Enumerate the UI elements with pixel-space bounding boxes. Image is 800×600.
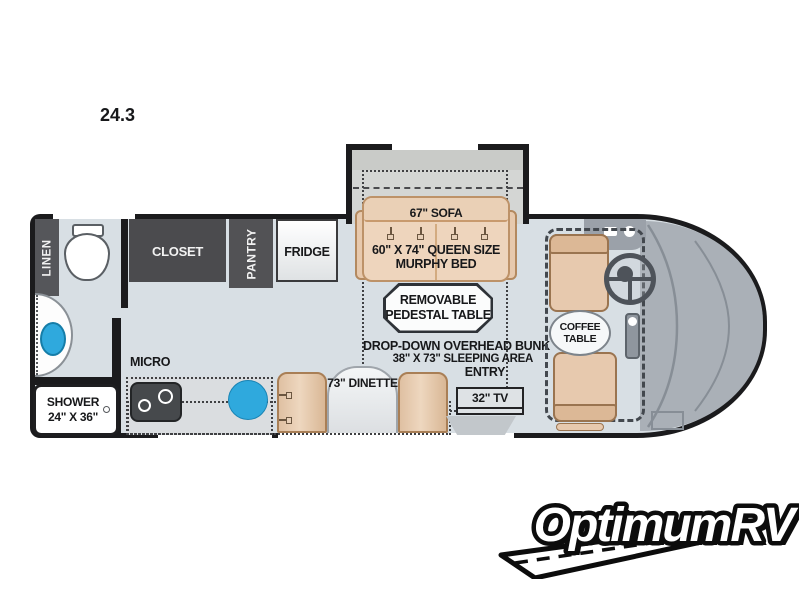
kitchen-sink bbox=[228, 380, 268, 420]
entry-label: ENTRY bbox=[450, 366, 520, 379]
floorplan-canvas: 24.3 LINEN CLOSET PANTRY FRIDGE bbox=[0, 0, 800, 600]
seatbelt-icon bbox=[386, 227, 395, 242]
tv-label: 32" TV bbox=[456, 392, 524, 405]
pantry-label: PANTRY bbox=[244, 228, 258, 279]
stove-burner-right bbox=[158, 389, 173, 404]
linen-cabinet: LINEN bbox=[35, 219, 59, 296]
tv-shelf-line bbox=[458, 407, 522, 409]
seatbelt-icon bbox=[279, 416, 294, 425]
pedestal-table-label: REMOVABLE PEDESTAL TABLE bbox=[383, 293, 493, 323]
murphy-bed-line2: MURPHY BED bbox=[366, 257, 506, 271]
vanity-dotted-edge bbox=[36, 295, 38, 375]
seatbelt-icon bbox=[279, 391, 294, 400]
shower-label: SHOWER 24" X 36" bbox=[36, 395, 110, 425]
stove-burner-left bbox=[138, 399, 151, 412]
steering-wheel-hub bbox=[617, 266, 633, 282]
murphy-bed-label: 60" X 74" QUEEN SIZE MURPHY BED bbox=[366, 243, 506, 272]
coffee-table-line2: TABLE bbox=[549, 333, 611, 345]
shower-head bbox=[103, 406, 110, 413]
slideout-upper-shade bbox=[352, 150, 523, 170]
dealer-logo: OptimumRV OptimumRV bbox=[493, 481, 799, 579]
chair-footrest bbox=[556, 423, 604, 431]
micro-label: MICRO bbox=[130, 356, 180, 369]
fridge-label: FRIDGE bbox=[276, 246, 338, 259]
dinette-label: 73" DINETTE bbox=[317, 377, 408, 390]
pedestal-table-line1: REMOVABLE bbox=[383, 293, 493, 308]
coffee-table-label: COFFEE TABLE bbox=[549, 321, 611, 345]
sofa-label: 67" SOFA bbox=[372, 207, 500, 220]
seatbelt-icon bbox=[450, 227, 459, 242]
seatbelt-icon bbox=[480, 227, 489, 242]
overhead-bunk-label: DROP-DOWN OVERHEAD BUNK 38" X 73" SLEEPI… bbox=[363, 340, 533, 365]
wall-bath-closet bbox=[121, 219, 128, 308]
model-number: 24.3 bbox=[100, 106, 160, 125]
seatbelt-icon bbox=[416, 227, 425, 242]
pantry-cabinet: PANTRY bbox=[229, 219, 273, 288]
pedestal-table-line2: PEDESTAL TABLE bbox=[383, 308, 493, 323]
bath-sink bbox=[40, 322, 66, 356]
shower-label-line1: SHOWER bbox=[36, 395, 110, 410]
console-cupholder bbox=[628, 317, 637, 326]
overhead-bunk-line2: 38" X 73" SLEEPING AREA bbox=[363, 353, 533, 365]
entry-step bbox=[446, 416, 516, 435]
captain-chair-rear-back bbox=[553, 404, 617, 422]
coffee-table-line1: COFFEE bbox=[549, 321, 611, 333]
slideout-travel-dashes bbox=[353, 187, 523, 189]
murphy-bed-line1: 60" X 74" QUEEN SIZE bbox=[366, 243, 506, 257]
captain-chair-front-back bbox=[549, 234, 609, 254]
closet-label: CLOSET bbox=[129, 245, 226, 259]
overhead-bunk-line1: DROP-DOWN OVERHEAD BUNK bbox=[363, 340, 533, 353]
linen-label: LINEN bbox=[41, 239, 53, 276]
slideout-window bbox=[392, 144, 478, 150]
shower-label-line2: 24" X 36" bbox=[36, 410, 110, 425]
logo-text: OptimumRV bbox=[534, 499, 799, 552]
